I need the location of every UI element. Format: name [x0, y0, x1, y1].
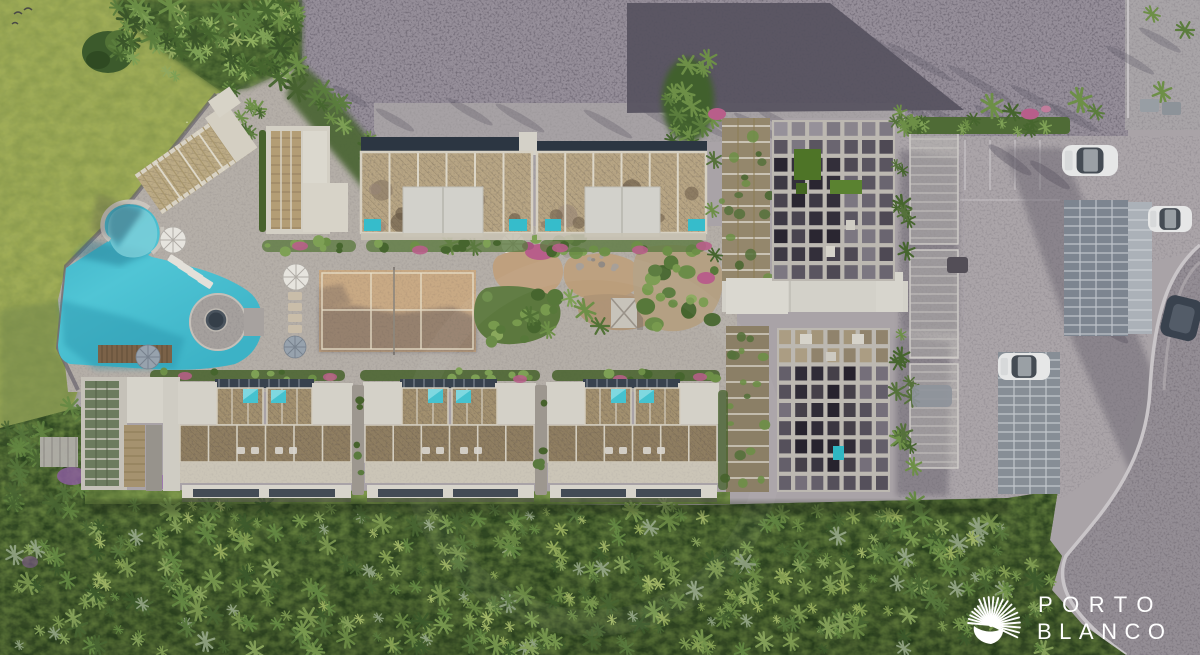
svg-text:PORTO: PORTO [1038, 592, 1163, 617]
svg-text:BLANCO: BLANCO [1037, 619, 1172, 644]
